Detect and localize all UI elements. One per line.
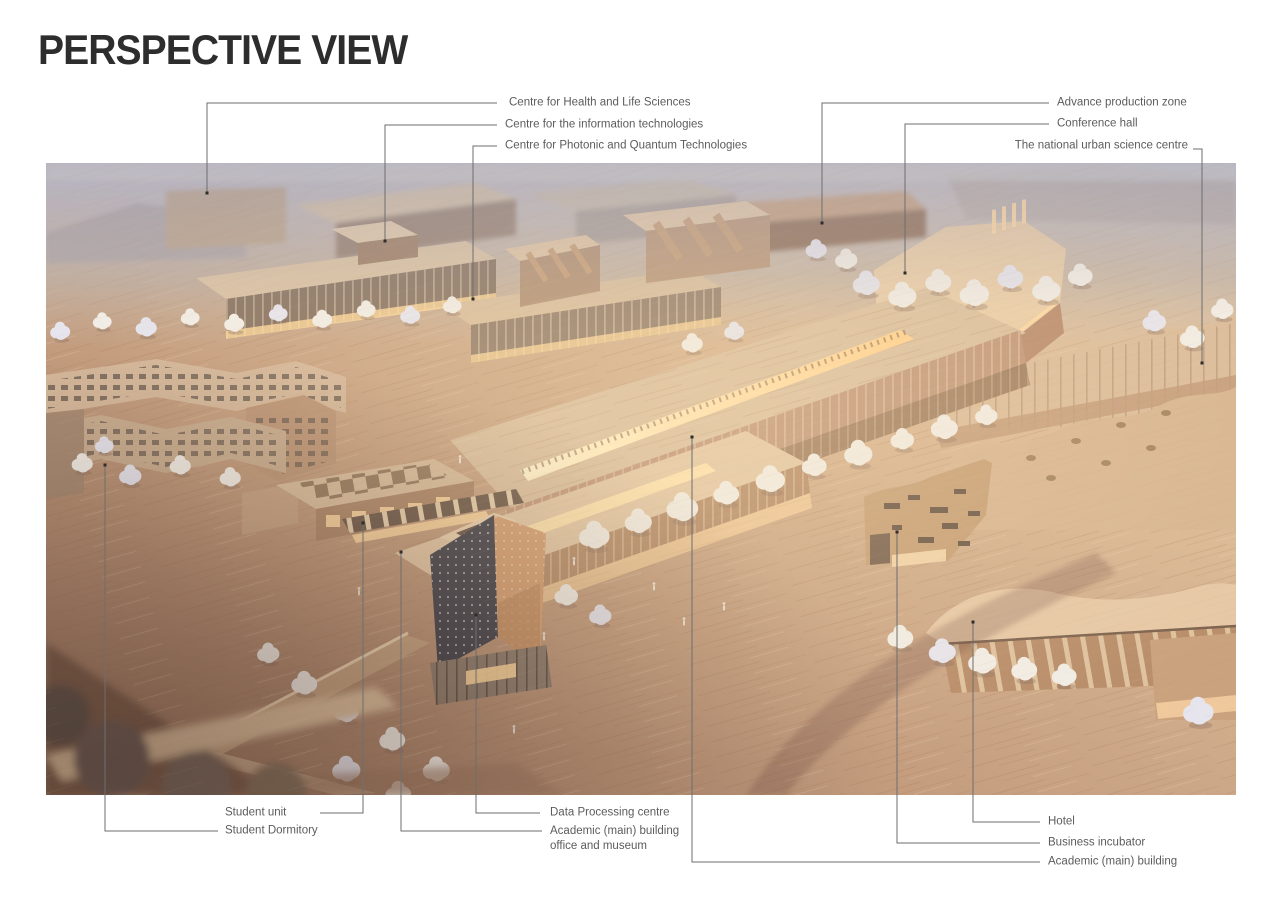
model-light-overlays (46, 163, 1236, 795)
callout-label-national-urban-science-centre: The national urban science centre (1015, 140, 1188, 152)
callout-label-business-incubator: Business incubator (1048, 837, 1145, 849)
callout-label-data-processing-centre: Data Processing centre (550, 807, 670, 819)
callout-label-academic-building-office-museum: Academic (main) building office and muse… (550, 824, 679, 854)
page-title: PERSPECTIVE VIEW (38, 26, 407, 74)
callout-label-student-unit: Student unit (225, 807, 286, 819)
presentation-board: PERSPECTIVE VIEW (0, 0, 1273, 900)
callout-label-hotel: Hotel (1048, 816, 1075, 828)
callout-label-centre-information-technologies: Centre for the information technologies (505, 119, 703, 131)
callout-label-academic-main-building: Academic (main) building (1048, 856, 1177, 868)
model-scene (46, 163, 1236, 795)
callout-label-student-dormitory: Student Dormitory (225, 825, 318, 837)
model-photo (46, 163, 1236, 795)
callout-label-centre-health-life-sciences: Centre for Health and Life Sciences (509, 97, 691, 109)
callout-label-line-2: office and museum (550, 839, 679, 854)
callout-label-advance-production-zone: Advance production zone (1057, 97, 1187, 109)
callout-label-centre-photonic-quantum: Centre for Photonic and Quantum Technolo… (505, 140, 747, 152)
callout-label-conference-hall: Conference hall (1057, 118, 1138, 130)
callout-label-line-1: Academic (main) building (550, 825, 679, 837)
